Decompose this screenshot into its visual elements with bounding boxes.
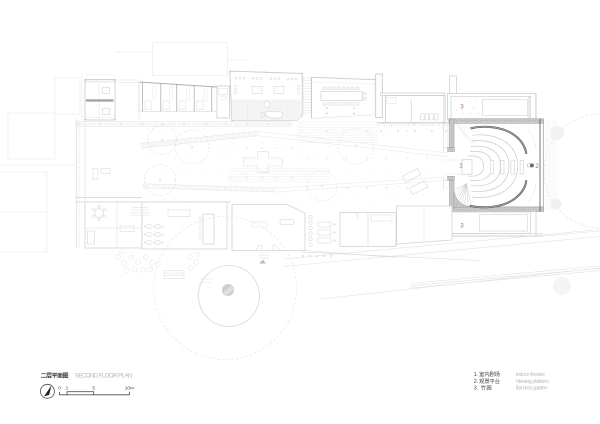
svg-text:二层平面图: 二层平面图 xyxy=(41,372,69,380)
svg-text:2. 观景平台: 2. 观景平台 xyxy=(474,377,500,385)
svg-text:1. 室内剧场: 1. 室内剧场 xyxy=(474,370,500,378)
svg-text:10m: 10m xyxy=(125,385,134,391)
svg-text:5: 5 xyxy=(92,385,95,391)
svg-text:Bamboo garden: Bamboo garden xyxy=(516,386,548,392)
svg-text:3. 竹园: 3. 竹园 xyxy=(474,384,492,392)
svg-text:Indoor theatre: Indoor theatre xyxy=(516,372,546,378)
svg-text:Viewing platform: Viewing platform xyxy=(516,379,550,385)
svg-text:0: 0 xyxy=(58,385,61,391)
svg-text:SECOND FLOOR PLAN: SECOND FLOOR PLAN xyxy=(75,374,133,380)
svg-text:1: 1 xyxy=(66,385,69,391)
